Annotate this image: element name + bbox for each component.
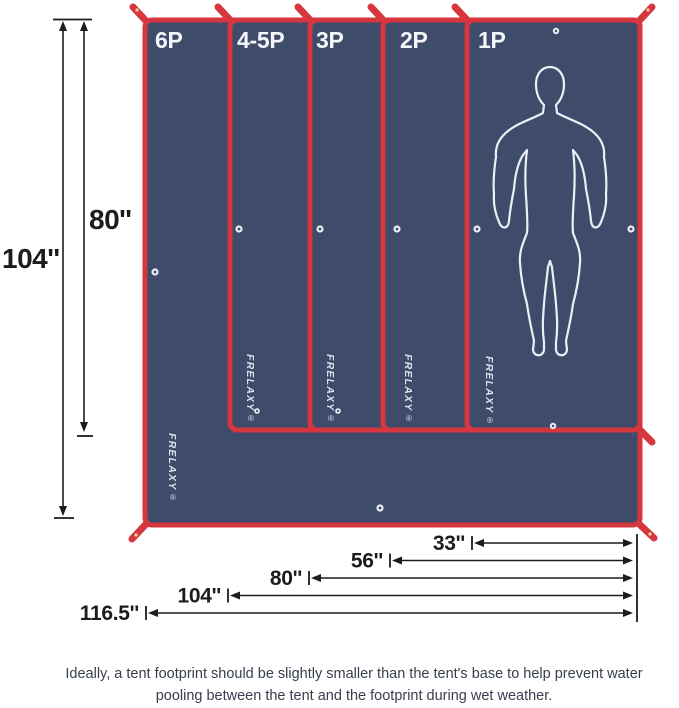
tent-footprint-diagram: 6P 4-5P 3P 2P 1P FRELAXY ® FRELAXY ® FRE… [0, 0, 679, 708]
dimension-arrow-116.5-width [146, 606, 633, 620]
strap-top-6p [133, 7, 147, 22]
dimension-arrow-33-width [472, 536, 633, 550]
registered-mark: ® [328, 414, 334, 423]
grommet [393, 225, 400, 232]
svg-text:FRELAXY: FRELAXY [244, 354, 256, 411]
registered-mark: ® [406, 414, 412, 423]
caption: Ideally, a tent footprint should be slig… [65, 666, 642, 704]
panel-label-2p: 2P [400, 27, 428, 53]
dimension-arrow-80-width [309, 571, 633, 585]
caption-line-1: Ideally, a tent footprint should be slig… [65, 666, 642, 682]
grommet [550, 423, 556, 429]
vertical-dimensions: 104'' 80'' [2, 20, 131, 519]
horizontal-dimensions: 33'' 56'' 80'' 104'' [80, 532, 637, 625]
panel-label-6p: 6P [155, 27, 183, 53]
svg-text:FRELAXY: FRELAXY [483, 356, 495, 413]
strap-top-right [638, 7, 652, 22]
svg-text:FRELAXY: FRELAXY [402, 354, 414, 411]
product-diagram-image: 6P 4-5P 3P 2P 1P FRELAXY ® FRELAXY ® FRE… [0, 0, 679, 708]
dim-label-33-width: 33'' [433, 532, 465, 555]
strap-buckle-dot [646, 8, 649, 11]
dim-label-104-height: 104'' [2, 243, 60, 274]
dim-label-116.5-width: 116.5'' [80, 602, 139, 625]
registered-mark: ® [248, 414, 254, 423]
strap-buckle-dot [648, 532, 651, 535]
grommet [627, 225, 634, 232]
grommet [473, 225, 480, 232]
panel-label-3p: 3P [316, 27, 344, 53]
dimension-arrow-104-width [228, 589, 633, 603]
strap-bottom-left [132, 523, 147, 539]
dim-label-56-width: 56'' [351, 550, 383, 573]
svg-text:FRELAXY: FRELAXY [166, 433, 178, 490]
grommet [235, 225, 242, 232]
dim-label-80-width: 80'' [270, 567, 302, 590]
grommet [316, 225, 323, 232]
grommet [553, 28, 559, 34]
registered-mark: ® [170, 493, 176, 502]
strap-buckle-dot [134, 533, 137, 536]
strap-buckle-dot [135, 8, 138, 11]
footprint-tarps [145, 20, 640, 525]
panel-label-1p: 1P [478, 27, 506, 53]
panel-label-4-5p: 4-5P [237, 27, 284, 53]
strap-bottom-right [638, 523, 654, 538]
dim-label-80-height: 80'' [89, 204, 131, 235]
grommet [151, 268, 158, 275]
dimension-arrow-56-width [390, 554, 633, 568]
dim-label-104-width: 104'' [177, 585, 221, 608]
svg-text:FRELAXY: FRELAXY [324, 354, 336, 411]
registered-mark: ® [487, 416, 493, 425]
grommet [376, 504, 383, 511]
caption-line-2: pooling between the tent and the footpri… [156, 688, 553, 704]
